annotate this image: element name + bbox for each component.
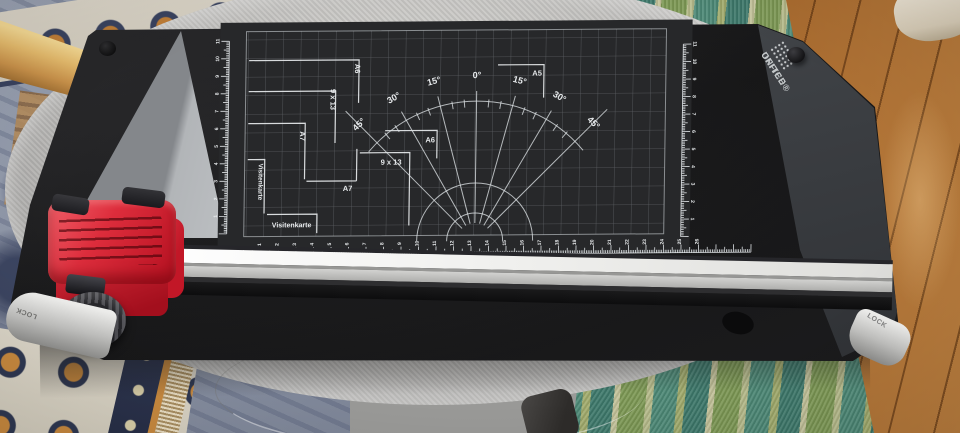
label-a6-horizontal: A6 (425, 135, 435, 144)
svg-text:18: 18 (555, 239, 561, 245)
label-visitenkarte-horizontal: Visitenkarte (272, 222, 312, 229)
svg-text:26: 26 (695, 238, 701, 244)
svg-text:7: 7 (214, 110, 220, 113)
angle-0: 0° (473, 70, 482, 80)
svg-text:13: 13 (467, 240, 473, 246)
svg-text:25: 25 (677, 239, 683, 245)
svg-text:24: 24 (660, 239, 666, 245)
svg-text:20: 20 (590, 239, 596, 245)
svg-text:5: 5 (690, 148, 696, 151)
svg-text:2: 2 (213, 197, 219, 200)
svg-text:5: 5 (327, 242, 333, 245)
svg-text:1: 1 (689, 218, 695, 221)
svg-text:17: 17 (537, 240, 543, 246)
grip-ribs (59, 213, 162, 265)
svg-text:1: 1 (213, 215, 219, 218)
label-visitenkarte-vertical: Visitenkarte (256, 164, 264, 201)
svg-text:19: 19 (572, 239, 578, 245)
svg-text:9: 9 (397, 242, 403, 245)
svg-text:2: 2 (689, 200, 695, 203)
corner-rivet (99, 41, 116, 56)
svg-text:6: 6 (345, 242, 351, 245)
svg-text:6: 6 (690, 130, 696, 133)
svg-text:8: 8 (691, 95, 697, 98)
photo-paper-trimmer-scene: UNITED® OFFICE A6 (0, 0, 960, 433)
svg-text:9: 9 (215, 75, 221, 78)
label-9x13-vertical: 9 x 13 (328, 89, 337, 110)
svg-text:2: 2 (275, 243, 281, 246)
svg-text:11: 11 (215, 38, 221, 44)
label-a7-horizontal: A7 (343, 184, 353, 193)
svg-text:15: 15 (502, 240, 508, 246)
svg-text:8: 8 (380, 242, 386, 245)
svg-text:4: 4 (214, 162, 220, 165)
svg-text:11: 11 (432, 240, 438, 246)
flap-knob[interactable] (787, 47, 805, 63)
label-9x13-horizontal: 9 x 13 (381, 158, 402, 167)
svg-text:9: 9 (691, 78, 697, 81)
lock-label-left: LOCK (15, 306, 38, 320)
svg-text:3: 3 (213, 180, 219, 183)
svg-text:5: 5 (214, 145, 220, 148)
svg-text:10: 10 (415, 240, 421, 246)
svg-text:16: 16 (520, 240, 526, 246)
label-a7-vertical: A7 (298, 131, 307, 141)
svg-text:14: 14 (485, 240, 491, 246)
svg-text:21: 21 (607, 239, 613, 245)
label-a5: A5 (532, 69, 542, 78)
svg-text:8: 8 (215, 92, 221, 95)
cutting-mat: A6 9 x 13 A7 Visitenkarte Visitenkarte A… (193, 18, 771, 262)
svg-text:3: 3 (292, 243, 298, 246)
svg-text:4: 4 (690, 165, 696, 168)
svg-text:3: 3 (689, 183, 695, 186)
svg-text:22: 22 (625, 239, 631, 245)
svg-text:12: 12 (450, 240, 456, 246)
svg-text:4: 4 (310, 243, 316, 246)
svg-text:23: 23 (642, 239, 648, 245)
svg-text:10: 10 (215, 56, 221, 62)
svg-text:6: 6 (214, 127, 220, 130)
cutting-mat-graphics: A6 9 x 13 A7 Visitenkarte Visitenkarte A… (193, 18, 771, 262)
svg-text:7: 7 (690, 113, 696, 116)
label-a6-vertical: A6 (353, 64, 362, 74)
svg-text:7: 7 (362, 242, 368, 245)
svg-text:11: 11 (691, 41, 697, 47)
svg-text:10: 10 (691, 59, 697, 65)
